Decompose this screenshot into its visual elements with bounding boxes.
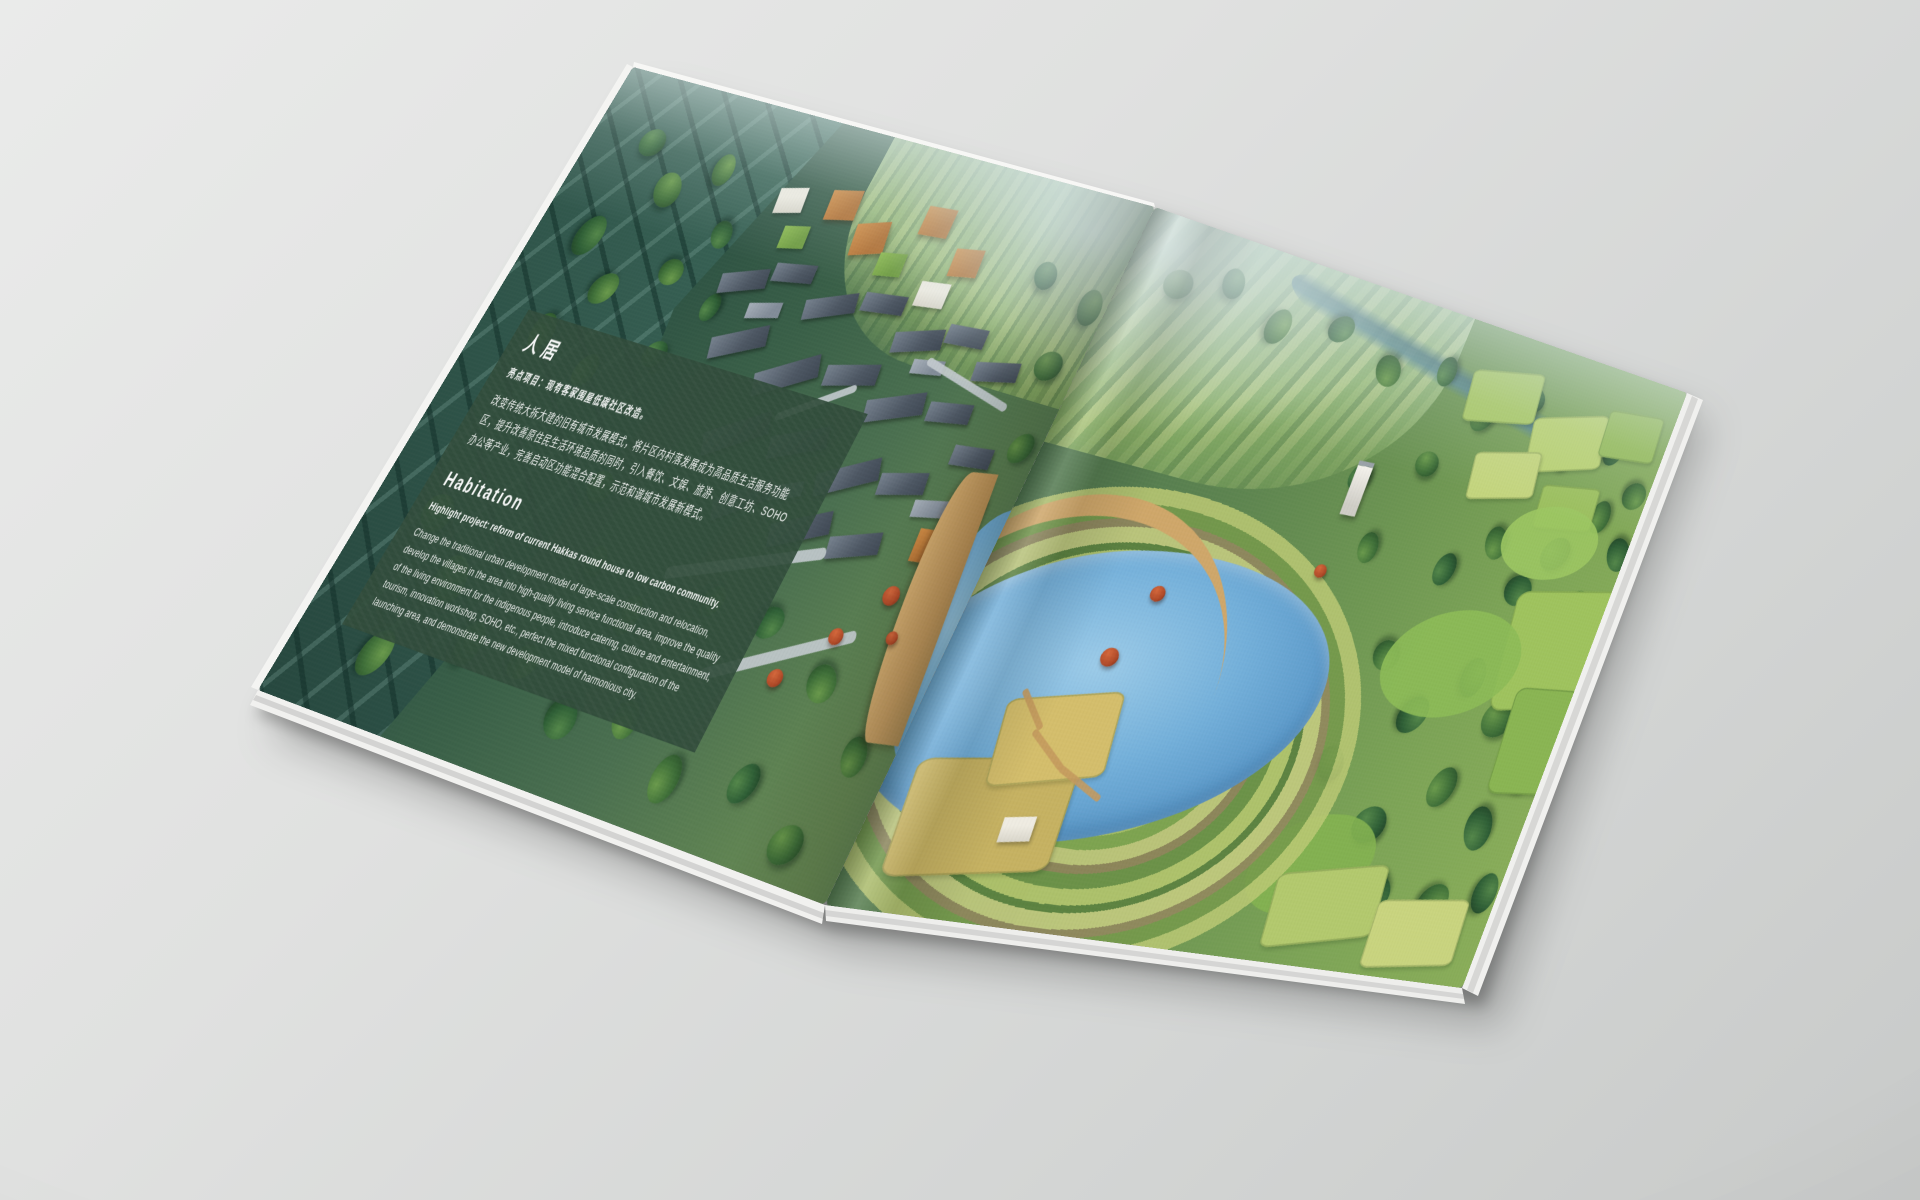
studio-backdrop: 人居 亮点项目：现有客家围屋低碳社区改造。 改变传统大拆大建的旧有城市发展模式，… — [0, 0, 1920, 1200]
